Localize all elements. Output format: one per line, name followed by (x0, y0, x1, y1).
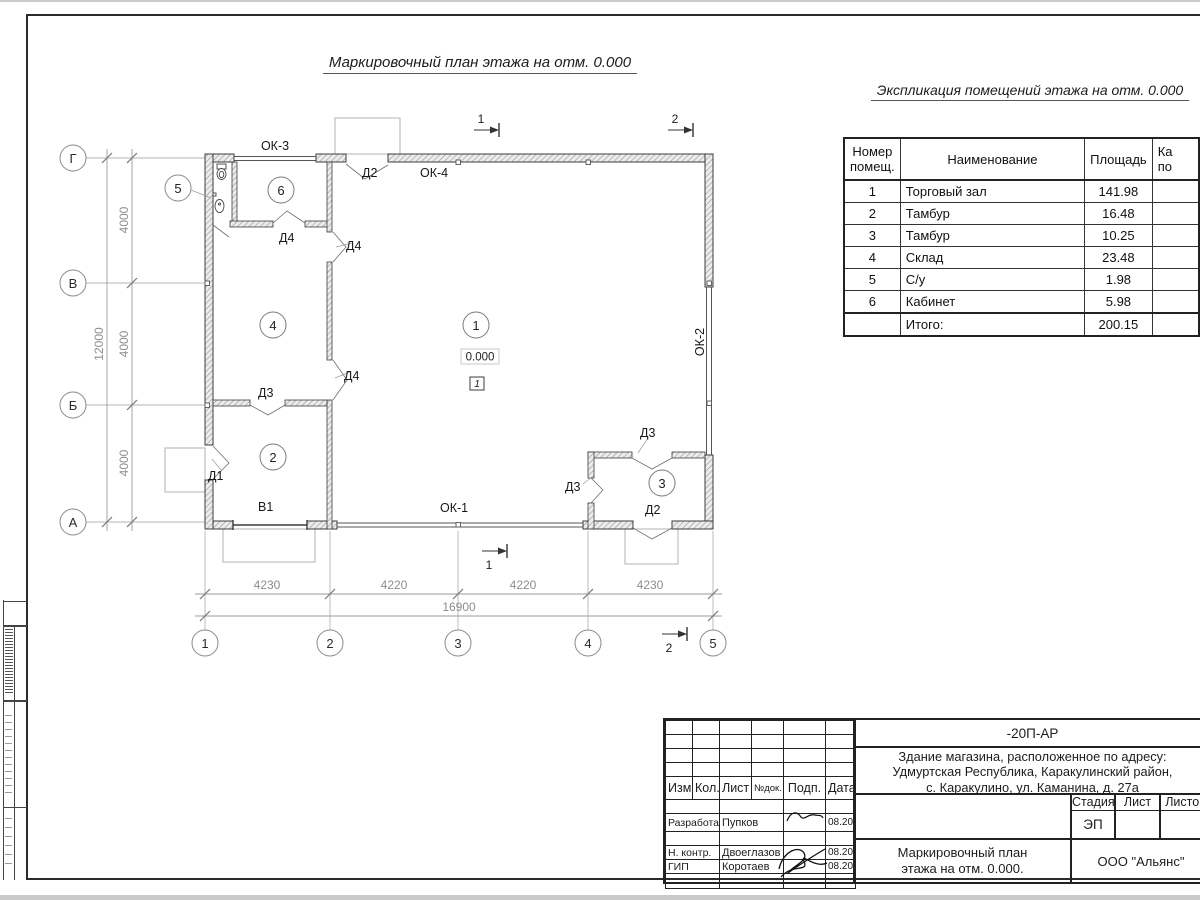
person-date: 08.20 (826, 814, 856, 832)
leader-lines (191, 190, 648, 484)
door-leaf-d3 (632, 458, 672, 469)
door-label-d3: Д3 (640, 426, 655, 440)
window-label-ok4: ОК-4 (420, 166, 448, 180)
window-label-ok1: ОК-1 (440, 501, 468, 515)
porch-bottom-left (223, 529, 315, 562)
room-numbers: 1 2 3 4 5 6 (174, 181, 665, 491)
wall-segment (232, 162, 237, 224)
wall-segment (213, 400, 250, 406)
axis-4: 4 (584, 636, 591, 651)
title-block: Изм. Кол. Лист №док. Подп. Дата Разработ… (663, 718, 1200, 884)
section-label-2: 2 (666, 641, 673, 655)
axis-grid (86, 158, 713, 630)
drawing-name-line: этажа на отм. 0.000. (901, 861, 1023, 877)
person-name: Пупков (720, 814, 784, 832)
interior-walls (213, 162, 705, 529)
door-leaf-d4 (333, 232, 346, 262)
axis-g: Г (69, 151, 76, 166)
wall-segment (316, 154, 346, 162)
room-6-number: 6 (277, 183, 284, 198)
porch-top (335, 118, 400, 154)
sheet-value (1114, 811, 1159, 840)
porch-left (165, 448, 205, 492)
col-data: Дата (826, 777, 856, 800)
axis-3: 3 (454, 636, 461, 651)
sheet-label: Лист (1114, 795, 1159, 811)
drawing-name-line: Маркировочный план (898, 845, 1028, 861)
window-label-ok2: ОК-2 (693, 328, 707, 356)
signature-icon (783, 808, 825, 826)
wall-segment (307, 521, 337, 529)
door-label-d3: Д3 (258, 386, 273, 400)
dim-16900: 16900 (442, 600, 476, 614)
dim-4000: 4000 (117, 206, 131, 233)
door-label-d3: Д3 (565, 480, 580, 494)
dim-4220: 4220 (510, 578, 537, 592)
axis-1: 1 (201, 636, 208, 651)
windows (234, 157, 712, 528)
door-leaf-d4 (273, 211, 305, 223)
door-label-d4: Д4 (346, 239, 361, 253)
axis-circle-labels: Г В Б А 1 2 3 4 5 (69, 151, 717, 651)
wall-segment (205, 480, 213, 529)
axis-v: В (69, 276, 78, 291)
exterior-walls (205, 154, 713, 529)
dim-4000: 4000 (117, 449, 131, 476)
wall-segment (672, 452, 705, 458)
company-name: ООО "Альянс" (1070, 840, 1200, 882)
porch-bottom-right (625, 529, 678, 564)
dim-12000: 12000 (92, 327, 106, 361)
section-marks: 1 2 1 2 (474, 112, 693, 655)
door-leaf-d2 (633, 528, 672, 539)
door-label-d2: Д2 (362, 166, 377, 180)
door-leaf-wc (213, 225, 229, 237)
drawing-name: Маркировочный план этажа на отм. 0.000. (853, 840, 1070, 882)
wall-segment (327, 400, 332, 529)
wall-segment (388, 154, 713, 162)
door-label-d2: Д2 (645, 503, 660, 517)
wall-segment (588, 452, 632, 458)
wall-segment (672, 521, 713, 529)
porches (165, 118, 678, 564)
wall-segment (305, 221, 330, 227)
col-ndoc: №док. (752, 777, 784, 800)
room-4-number: 4 (269, 318, 276, 333)
floor-type-value: 1 (474, 378, 480, 390)
door-label-d4: Д4 (279, 231, 294, 245)
drawing-sheet: Маркировочный план этажа на отм. 0.000 Э… (0, 0, 1200, 900)
section-label-1: 1 (486, 558, 493, 572)
section-mark-2-bottom (662, 627, 687, 641)
empty-cell (853, 795, 1070, 840)
wall-segment (205, 154, 213, 445)
sheets-label: Листов (1159, 795, 1200, 811)
stage-value: ЭП (1070, 811, 1114, 840)
gate-v1 (233, 520, 307, 530)
dim-4230: 4230 (254, 578, 281, 592)
dimension-lines (107, 149, 722, 616)
dim-4220: 4220 (381, 578, 408, 592)
stage-label: Стадия (1070, 795, 1114, 811)
address-line: с. Каракулино, ул. Каманина, д. 27а (855, 780, 1200, 795)
address-line: Здание магазина, расположенное по адресу… (855, 749, 1200, 764)
door-leaves (213, 164, 672, 539)
signature-header-row: Изм. Кол. Лист №док. Подп. Дата (666, 777, 856, 800)
person-row: Разработал Пупков 08.20 (666, 814, 856, 832)
room-1-number: 1 (472, 318, 479, 333)
wall-segment (327, 262, 332, 360)
person-role: Разработал (666, 814, 720, 832)
section-label-1: 1 (478, 112, 485, 126)
door-label-d1: Д1 (208, 469, 223, 483)
dimension-ticks (102, 153, 718, 621)
person-role: Н. контр. (666, 846, 720, 860)
gate-label-v1: В1 (258, 500, 273, 514)
wall-segment (327, 162, 332, 232)
room-3-number: 3 (658, 476, 665, 491)
dim-4000: 4000 (117, 330, 131, 357)
axis-wall-markers (205, 160, 712, 527)
axis-5: 5 (709, 636, 716, 651)
wall-segment (705, 154, 713, 287)
project-address: Здание магазина, расположенное по адресу… (853, 748, 1200, 795)
wall-segment (588, 452, 594, 478)
col-list: Лист (720, 777, 752, 800)
col-izm: Изм. (666, 777, 693, 800)
axis-b: Б (69, 398, 78, 413)
sink-icon (213, 193, 224, 213)
door-leaf-d3 (591, 478, 603, 503)
door-leaf-d3 (250, 405, 285, 415)
axis-a: А (69, 515, 78, 530)
col-podp: Подп. (784, 777, 826, 800)
person-role: ГИП (666, 860, 720, 874)
room-2-number: 2 (269, 450, 276, 465)
elevation-value: 0.000 (466, 352, 495, 364)
wall-segment (705, 455, 713, 529)
toilet-icon (217, 164, 226, 180)
section-label-2: 2 (672, 112, 679, 126)
door-label-d4: Д4 (344, 369, 359, 383)
section-mark-1-bottom (482, 544, 507, 558)
col-kol: Кол. (693, 777, 720, 800)
wall-segment (588, 503, 594, 529)
dimension-labels: 4000 4000 4000 12000 4230 4220 4220 4230… (92, 206, 664, 614)
address-line: Удмуртская Республика, Каракулинский рай… (855, 764, 1200, 779)
room-5-number: 5 (174, 181, 181, 196)
window-label-ok3: ОК-3 (261, 139, 289, 153)
axis-2: 2 (326, 636, 333, 651)
signature-icon (773, 839, 831, 881)
wall-segment (230, 221, 273, 227)
sheets-value (1159, 811, 1200, 840)
doc-code: -20П-АР (853, 720, 1200, 748)
dim-4230: 4230 (637, 578, 664, 592)
wall-segment (285, 400, 327, 406)
